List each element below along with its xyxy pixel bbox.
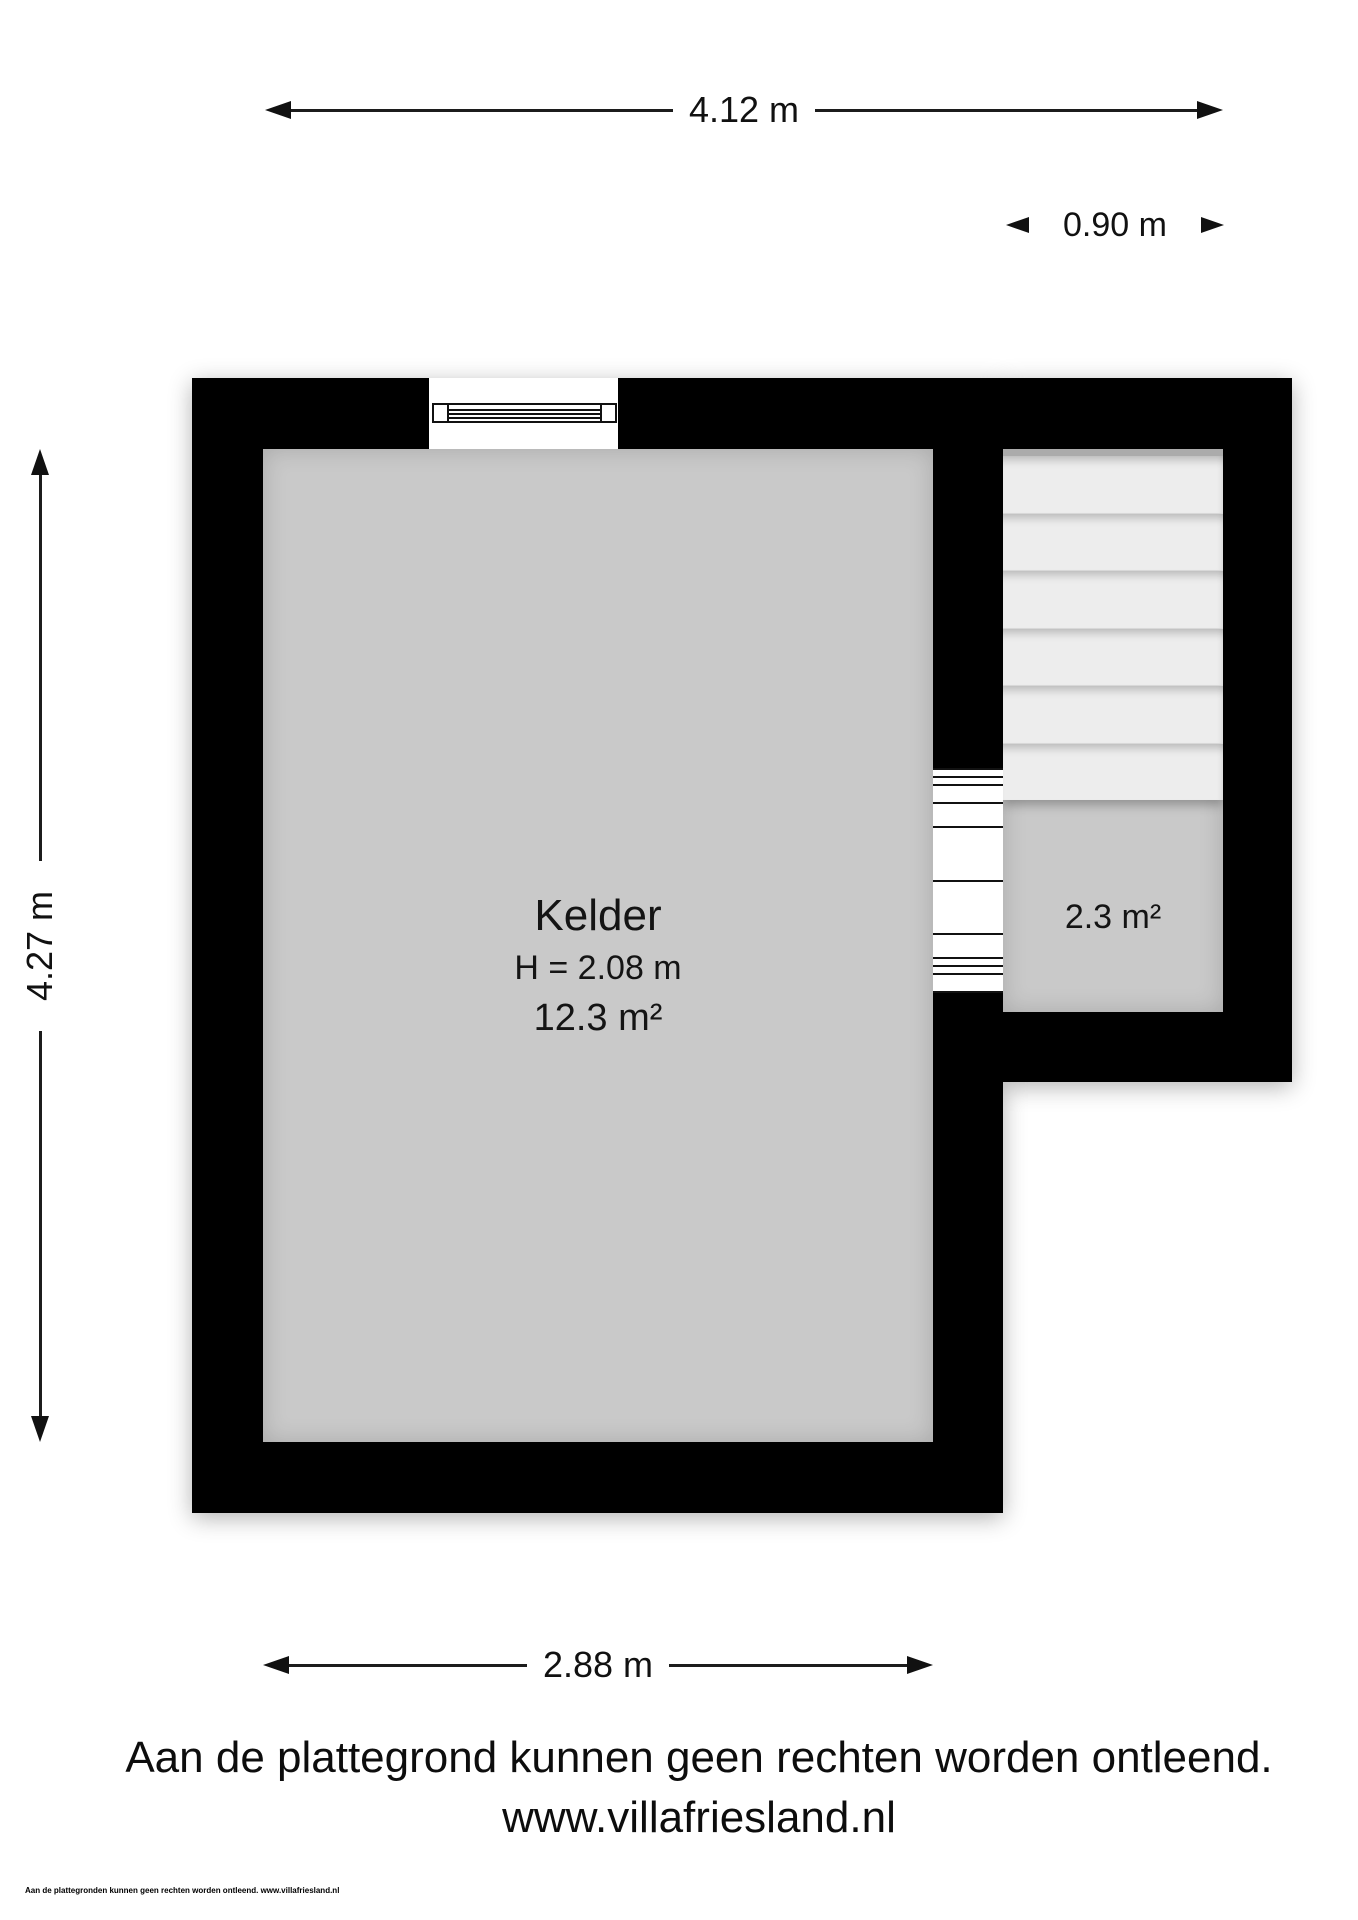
interior-window-line (933, 957, 1003, 959)
window-icon (432, 403, 617, 423)
stairwell-area-label: 2.3 m² (1003, 898, 1223, 937)
dimension-top-width-label: 4.12 m (689, 89, 799, 131)
interior-window-opening (933, 768, 1003, 993)
room-height: H = 2.08 m (263, 944, 933, 992)
stair-tread (1003, 686, 1223, 744)
dimension-line (669, 1664, 907, 1667)
stair-tread (1003, 571, 1223, 629)
interior-window-line (933, 826, 1003, 828)
dimension-bottom-width-label: 2.88 m (543, 1644, 653, 1686)
arrowhead-right-icon (1201, 217, 1224, 233)
stair-tread (1003, 629, 1223, 687)
dimension-left-height-labelwrap: 4.27 m (0, 861, 95, 1031)
arrowhead-left-icon (263, 1656, 289, 1674)
footer-website: www.villafriesland.nl (40, 1788, 1358, 1848)
window-glass-line (448, 417, 601, 419)
stair-tread (1003, 514, 1223, 572)
dimension-line (289, 1664, 527, 1667)
stair-tread (1003, 744, 1223, 801)
arrowhead-right-icon (907, 1656, 933, 1674)
dimension-left-height: 4.27 m (18, 449, 62, 1442)
floorplan-page: 4.12 m 0.90 m 4.27 m (0, 0, 1358, 1920)
dimension-stair-width-label: 0.90 m (1063, 206, 1167, 245)
interior-window-line (933, 776, 1003, 778)
arrowhead-left-icon (1006, 217, 1029, 233)
dimension-line (39, 1031, 42, 1417)
window-glass-line (448, 413, 601, 415)
stairs-top-edge (1003, 449, 1223, 456)
arrowhead-left-icon (265, 101, 291, 119)
kelder-label-block: Kelder H = 2.08 m 12.3 m² (263, 888, 933, 1044)
interior-window-line (933, 880, 1003, 882)
fineprint: Aan de plattegronden kunnen geen rechten… (25, 1886, 339, 1895)
dimension-line (39, 475, 42, 861)
dimension-left-height-label: 4.27 m (19, 890, 61, 1000)
dimension-top-width: 4.12 m (265, 88, 1223, 132)
room-area: 12.3 m² (263, 992, 933, 1044)
stair-tread (1003, 456, 1223, 514)
dimension-bottom-width: 2.88 m (263, 1643, 933, 1687)
stairs (1003, 449, 1223, 800)
interior-window-line (933, 973, 1003, 975)
dimension-line (815, 109, 1197, 112)
interior-window-line (933, 991, 1003, 993)
interior-window-line (933, 802, 1003, 804)
window-glass-line (448, 409, 601, 411)
interior-window-line (933, 784, 1003, 786)
arrowhead-right-icon (1197, 101, 1223, 119)
arrowhead-up-icon (31, 449, 49, 475)
room-name: Kelder (263, 888, 933, 944)
dimension-stair-width: 0.90 m (1006, 203, 1224, 247)
footer: Aan de plattegrond kunnen geen rechten w… (40, 1728, 1358, 1848)
dimension-line (291, 109, 673, 112)
footer-disclaimer: Aan de plattegrond kunnen geen rechten w… (40, 1728, 1358, 1788)
arrowhead-down-icon (31, 1416, 49, 1442)
interior-window-line (933, 768, 1003, 770)
interior-window-line (933, 933, 1003, 935)
interior-window-line (933, 965, 1003, 967)
